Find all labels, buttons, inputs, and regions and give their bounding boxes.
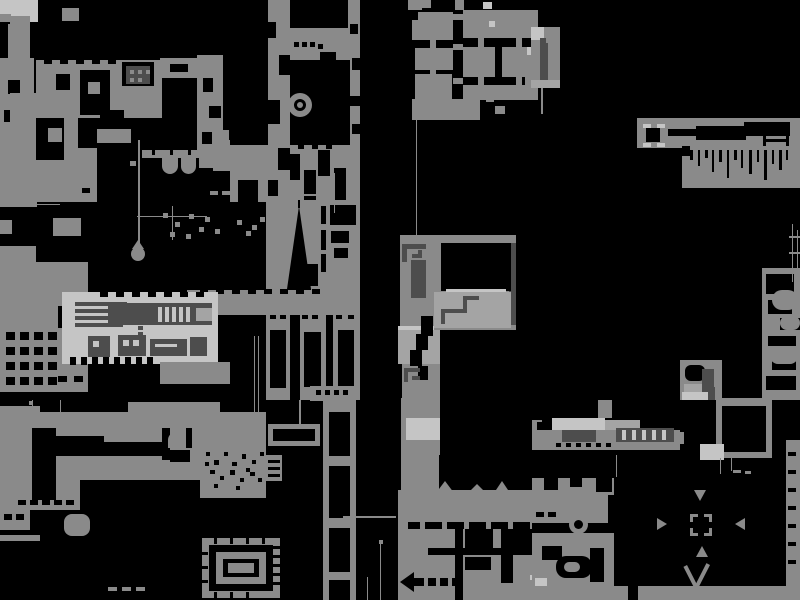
map-shape (757, 150, 759, 162)
map-shape (544, 478, 558, 490)
map-shape (100, 110, 124, 118)
map-shape (430, 40, 436, 48)
map-shape (741, 150, 743, 168)
map-shape (336, 315, 342, 319)
map-shape (20, 362, 29, 370)
map-shape (268, 460, 280, 463)
map-shape (160, 362, 230, 384)
map-shape (165, 307, 169, 322)
map-shape (606, 443, 611, 447)
map-shape (180, 292, 188, 297)
map-shape (186, 428, 192, 448)
map-shape (564, 562, 580, 572)
map-shape (789, 252, 800, 254)
map-shape (196, 292, 204, 297)
map-shape (421, 316, 433, 336)
map-shape (146, 70, 150, 74)
map-shape (246, 468, 250, 472)
map-shape (643, 124, 651, 128)
map-shape (304, 332, 321, 387)
map-shape (453, 44, 463, 50)
map-shape (668, 129, 698, 136)
map-shape (657, 143, 665, 147)
map-shape (463, 85, 538, 100)
map-shape (318, 150, 330, 176)
map-shape (18, 500, 26, 505)
map-shape (334, 168, 346, 200)
map-shape (727, 150, 729, 178)
map-shape (296, 289, 304, 294)
map-shape (248, 289, 256, 294)
map-shape (203, 78, 213, 92)
map-shape (486, 96, 494, 102)
game-map-viewport (0, 0, 800, 600)
map-shape (478, 77, 484, 85)
map-shape (334, 248, 348, 258)
map-shape (720, 458, 721, 474)
map-shape (652, 430, 656, 440)
map-shape (230, 470, 235, 475)
map-shape (586, 443, 591, 447)
compass-arrow (735, 518, 745, 530)
map-shape (230, 592, 233, 598)
map-shape (188, 149, 191, 155)
map-shape (350, 24, 358, 34)
map-shape (42, 500, 50, 505)
map-shape (162, 156, 178, 174)
map-shape (258, 478, 262, 482)
map-shape (705, 150, 708, 158)
map-shape (70, 357, 76, 365)
map-shape (210, 191, 218, 195)
map-shape (29, 401, 33, 405)
map-shape (152, 149, 155, 155)
map-shape (574, 520, 583, 529)
map-shape (246, 592, 249, 598)
map-shape (106, 376, 115, 382)
map-shape (495, 106, 505, 114)
map-shape (312, 145, 318, 149)
map-shape (768, 336, 796, 346)
map-shape (734, 150, 737, 160)
map-shape (622, 430, 626, 440)
map-shape (278, 148, 290, 170)
map-shape (463, 47, 495, 77)
map-shape (408, 0, 422, 10)
map-shape (48, 128, 62, 142)
map-shape (122, 376, 131, 382)
map-shape (100, 292, 108, 297)
map-shape (731, 458, 732, 471)
dungeon-map (0, 0, 800, 600)
map-shape (189, 214, 194, 219)
map-shape (268, 100, 280, 124)
map-shape (164, 292, 172, 297)
map-shape (657, 124, 665, 128)
map-shape (788, 560, 796, 564)
map-shape (430, 70, 436, 76)
map-shape (270, 315, 276, 319)
map-shape (338, 330, 354, 388)
map-shape (329, 466, 350, 518)
map-shape (532, 586, 612, 600)
map-shape (421, 0, 431, 8)
map-shape (788, 488, 796, 492)
map-shape (412, 376, 420, 380)
map-shape (404, 368, 408, 382)
map-shape (709, 514, 712, 522)
map-shape (709, 528, 712, 536)
map-shape (93, 341, 99, 347)
map-shape (279, 55, 290, 75)
map-shape (60, 60, 68, 64)
map-shape (170, 64, 188, 72)
map-shape (696, 126, 746, 140)
map-shape (780, 316, 800, 330)
map-shape (546, 30, 560, 43)
map-shape (416, 120, 417, 238)
map-shape (122, 587, 131, 591)
map-shape (74, 376, 83, 382)
map-shape (264, 289, 272, 294)
map-shape (0, 406, 40, 414)
map-shape (108, 60, 116, 64)
map-shape (254, 336, 255, 412)
map-shape (412, 12, 453, 40)
map-shape (300, 264, 318, 286)
map-shape (138, 70, 142, 74)
map-shape (411, 260, 426, 298)
map-shape (268, 474, 280, 477)
map-shape (97, 129, 131, 143)
observatory-eye-core (297, 102, 303, 108)
map-shape (175, 222, 180, 227)
map-shape (190, 337, 207, 356)
map-shape (280, 315, 286, 319)
map-shape (453, 78, 463, 84)
map-shape (64, 514, 90, 536)
river-channel (32, 428, 56, 500)
map-shape (334, 173, 335, 213)
map-shape (788, 452, 796, 456)
map-shape (642, 430, 646, 440)
map-shape (379, 540, 383, 544)
map-shape (123, 340, 129, 346)
map-shape (596, 443, 601, 447)
map-shape (329, 412, 350, 456)
map-shape (20, 347, 29, 355)
map-shape (453, 104, 463, 110)
map-shape (348, 315, 354, 319)
map-shape (136, 587, 145, 591)
map-shape (48, 377, 57, 385)
map-shape (643, 143, 651, 147)
map-shape (222, 191, 230, 195)
map-shape (562, 430, 596, 442)
map-shape (262, 538, 265, 544)
map-shape (0, 204, 60, 205)
map-shape (224, 452, 228, 456)
map-shape (196, 308, 212, 321)
map-shape (788, 524, 796, 528)
map-shape (566, 443, 571, 447)
map-shape (298, 200, 300, 208)
map-shape (48, 347, 57, 355)
map-shape (209, 106, 221, 118)
map-shape (552, 418, 605, 430)
map-shape (788, 506, 796, 510)
map-shape (147, 357, 153, 365)
map-shape (556, 443, 561, 447)
map-shape (66, 500, 74, 505)
map-shape (745, 471, 751, 474)
map-shape (6, 377, 15, 385)
map-shape (465, 557, 491, 570)
map-shape (334, 390, 339, 395)
map-shape (508, 522, 513, 529)
map-shape (214, 460, 219, 465)
map-shape (299, 400, 301, 425)
map-shape (54, 436, 104, 456)
map-shape (690, 150, 693, 160)
map-shape (186, 307, 190, 322)
map-shape (34, 347, 43, 355)
map-shape (202, 552, 208, 555)
map-shape (404, 481, 424, 493)
map-shape (202, 566, 208, 569)
map-shape (170, 232, 175, 237)
map-shape (108, 587, 117, 591)
map-shape (400, 572, 414, 592)
map-shape (202, 580, 208, 583)
map-shape (662, 430, 666, 440)
map-shape (310, 42, 315, 47)
map-shape (770, 348, 798, 364)
map-shape (789, 236, 800, 238)
map-shape (130, 70, 134, 74)
map-shape (712, 150, 714, 172)
map-shape (125, 357, 131, 365)
map-shape (312, 315, 318, 319)
map-shape (228, 563, 254, 573)
map-shape (296, 194, 316, 196)
map-shape (722, 406, 766, 452)
map-shape (352, 58, 360, 70)
map-shape (418, 250, 422, 258)
map-shape (200, 478, 266, 498)
map-shape (516, 38, 522, 47)
map-shape (733, 470, 741, 473)
map-shape (788, 542, 796, 546)
map-shape (690, 528, 693, 536)
map-shape (236, 486, 240, 490)
map-shape (214, 484, 218, 488)
map-shape (343, 516, 396, 518)
map-shape (258, 336, 259, 412)
map-shape (749, 150, 752, 174)
map-shape (155, 344, 177, 347)
map-shape (708, 387, 715, 400)
map-shape (168, 432, 184, 448)
map-shape (596, 478, 612, 492)
map-shape (698, 150, 700, 166)
map-shape (130, 78, 134, 82)
map-shape (138, 140, 140, 246)
map-shape (540, 38, 548, 80)
map-shape (786, 440, 800, 600)
map-shape (329, 580, 350, 600)
map-shape (298, 145, 304, 149)
teardrop-marker (131, 247, 145, 261)
map-shape (415, 74, 452, 100)
map-shape (412, 12, 418, 20)
map-shape (302, 42, 307, 47)
map-shape (779, 150, 782, 170)
map-shape (237, 220, 242, 225)
map-shape (4, 514, 12, 520)
map-shape (420, 522, 425, 529)
map-shape (230, 538, 233, 544)
map-shape (290, 315, 300, 400)
map-shape (92, 357, 98, 365)
map-shape (128, 402, 220, 414)
map-shape (6, 347, 15, 355)
map-shape (331, 231, 349, 243)
map-shape (436, 481, 454, 493)
map-shape (786, 135, 789, 146)
map-shape (34, 377, 43, 385)
map-shape (590, 548, 604, 582)
map-shape (416, 334, 428, 350)
map-shape (531, 80, 560, 88)
map-shape (343, 390, 348, 395)
map-shape (271, 564, 280, 567)
map-shape (0, 510, 30, 530)
map-shape (516, 77, 522, 85)
map-shape (316, 390, 321, 395)
map-shape (58, 376, 67, 382)
map-shape (138, 78, 142, 82)
map-shape (48, 332, 57, 340)
map-shape (186, 234, 191, 239)
map-shape (271, 555, 280, 558)
map-shape (329, 528, 350, 572)
map-shape (56, 74, 70, 90)
map-shape (199, 227, 204, 232)
map-shape (102, 442, 164, 456)
map-shape (138, 326, 143, 330)
map-shape (181, 156, 196, 174)
map-shape (674, 432, 684, 444)
map-shape (326, 145, 332, 149)
map-shape (690, 514, 693, 522)
map-shape (20, 377, 29, 385)
map-shape (294, 42, 299, 47)
map-shape (270, 330, 286, 388)
map-shape (598, 400, 612, 418)
map-shape (136, 357, 142, 365)
map-shape (468, 484, 486, 493)
map-shape (266, 22, 276, 38)
map-shape (30, 500, 38, 505)
map-shape (766, 376, 796, 390)
map-shape (541, 88, 543, 114)
map-shape (455, 0, 464, 10)
map-shape (536, 512, 544, 517)
map-shape (206, 452, 210, 456)
map-shape (103, 357, 109, 365)
map-shape (252, 460, 256, 464)
map-shape (215, 229, 220, 234)
map-shape (34, 332, 43, 340)
map-shape (719, 150, 722, 162)
map-shape (232, 462, 237, 466)
map-shape (150, 339, 187, 356)
map-shape (273, 429, 315, 441)
map-shape (453, 14, 463, 20)
map-shape (48, 362, 57, 370)
map-shape (489, 21, 495, 27)
map-shape (81, 357, 87, 365)
map-shape (6, 362, 15, 370)
map-shape (463, 10, 538, 38)
map-shape (34, 362, 43, 370)
map-shape (163, 213, 168, 218)
map-shape (202, 132, 212, 144)
map-shape (321, 230, 326, 250)
map-shape (415, 48, 453, 70)
map-shape (764, 150, 767, 180)
map-shape (494, 481, 510, 493)
map-shape (280, 289, 288, 294)
map-shape (271, 546, 280, 549)
map-shape (501, 555, 513, 583)
map-shape (76, 60, 84, 64)
map-shape (464, 522, 469, 529)
map-shape (170, 149, 173, 155)
map-shape (268, 467, 280, 470)
map-shape (312, 289, 320, 294)
map-shape (638, 586, 800, 600)
map-shape (428, 548, 538, 555)
map-shape (682, 392, 708, 400)
compass-arrow (657, 518, 667, 530)
map-shape (321, 206, 326, 224)
map-shape (463, 296, 479, 300)
map-shape (205, 462, 209, 466)
map-shape (576, 443, 581, 447)
map-shape (352, 124, 360, 134)
map-shape (424, 577, 428, 587)
map-shape (788, 470, 796, 474)
map-shape (44, 60, 52, 64)
map-shape (210, 470, 215, 474)
map-shape (260, 452, 264, 456)
map-shape (54, 500, 62, 505)
map-shape (682, 146, 690, 156)
map-shape (406, 418, 440, 440)
map-shape (158, 307, 162, 322)
map-shape (205, 217, 210, 222)
map-shape (240, 478, 244, 482)
map-shape (53, 218, 81, 236)
map-shape (179, 307, 183, 322)
map-shape (321, 254, 326, 272)
map-shape (350, 96, 360, 106)
map-shape (220, 476, 224, 480)
map-shape (465, 529, 493, 548)
map-shape (130, 161, 136, 166)
